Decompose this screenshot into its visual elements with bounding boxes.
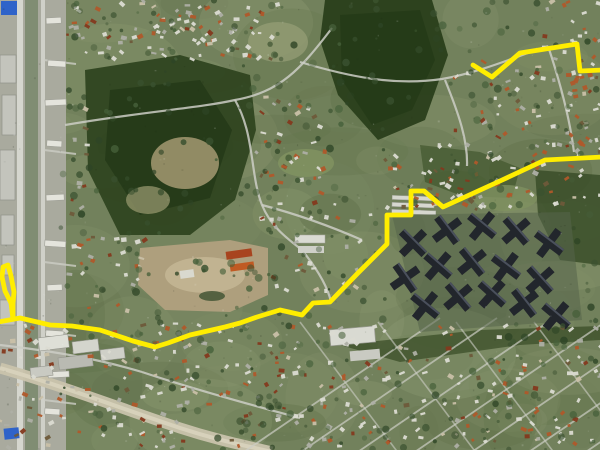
satellite-map-image [0,0,600,450]
satellite-map-screenshot [0,0,600,450]
